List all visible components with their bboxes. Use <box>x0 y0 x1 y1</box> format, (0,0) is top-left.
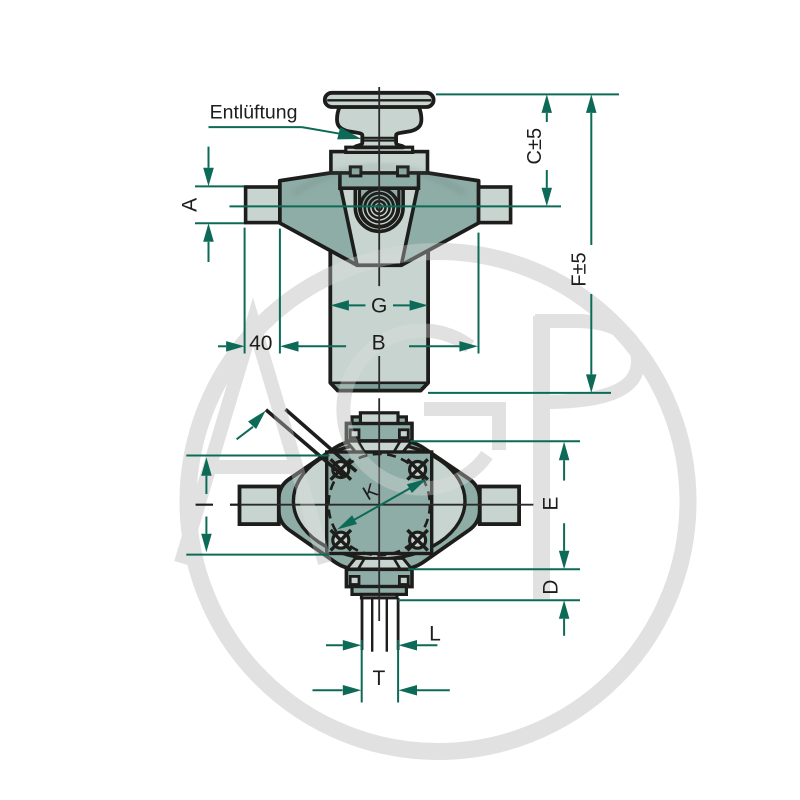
svg-text:Entlüftung: Entlüftung <box>210 101 298 123</box>
svg-text:C±5: C±5 <box>524 128 546 165</box>
svg-text:40: 40 <box>249 332 272 355</box>
svg-text:A: A <box>179 198 202 212</box>
svg-text:F±5: F±5 <box>569 252 591 286</box>
svg-text:E: E <box>540 497 563 511</box>
svg-text:B: B <box>372 332 386 355</box>
svg-text:T: T <box>372 667 385 690</box>
svg-text:L: L <box>429 623 441 646</box>
svg-text:G: G <box>371 294 387 317</box>
svg-text:D: D <box>540 580 563 595</box>
